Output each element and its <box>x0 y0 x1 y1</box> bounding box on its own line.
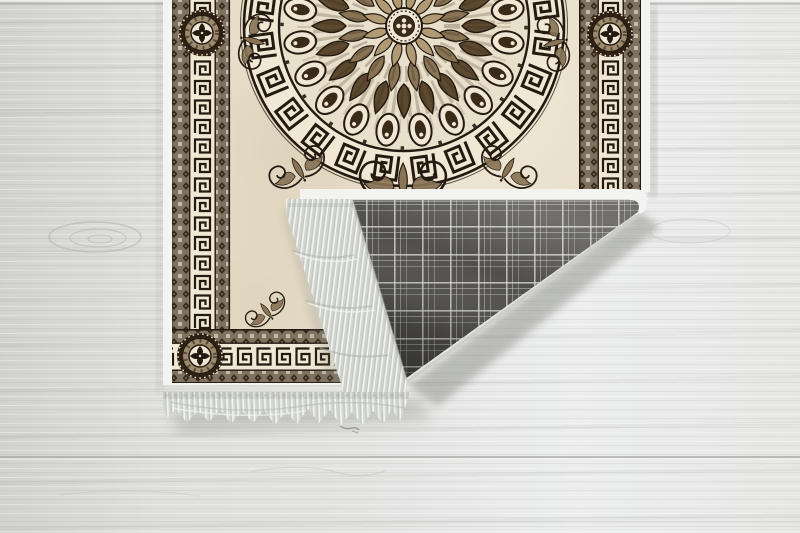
left-binding <box>163 0 172 385</box>
floor-scratch <box>340 426 359 433</box>
mandala-core <box>386 8 422 44</box>
product-photo <box>0 0 800 533</box>
left-greek-key-border <box>171 0 230 385</box>
right-binding <box>641 0 650 192</box>
rug-photo-illustration <box>0 0 800 533</box>
